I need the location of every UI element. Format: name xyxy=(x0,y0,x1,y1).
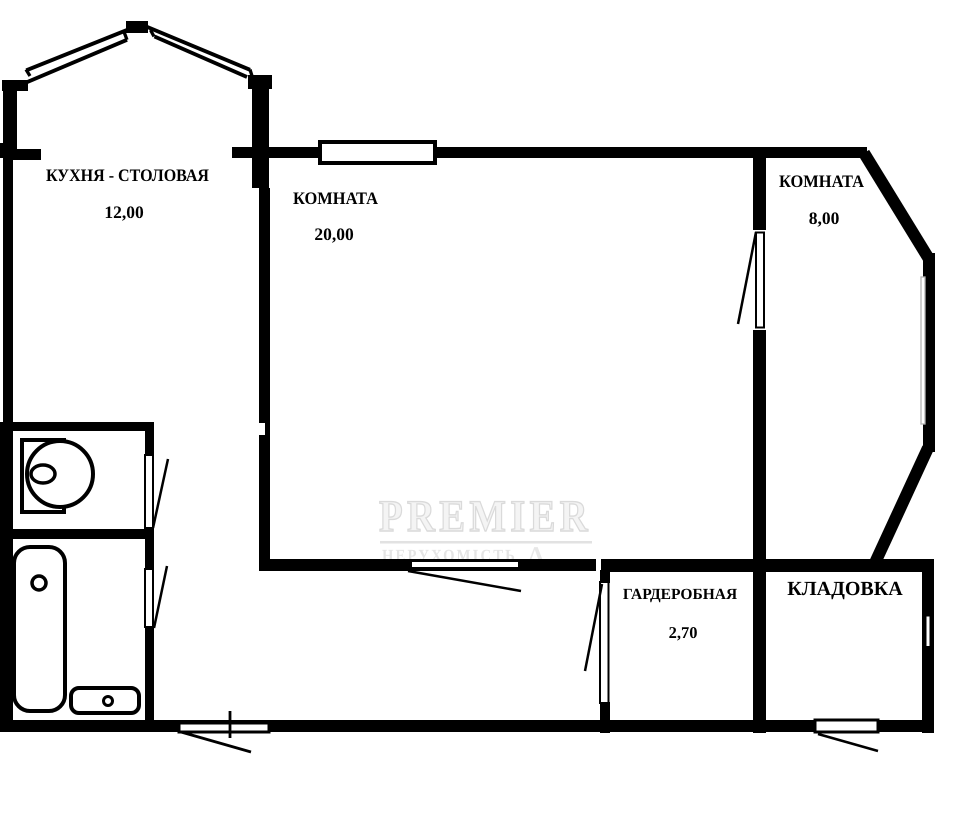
svg-text:КОМНАТА: КОМНАТА xyxy=(293,188,378,208)
svg-text:8,00: 8,00 xyxy=(809,208,840,228)
svg-text:20,00: 20,00 xyxy=(314,224,354,244)
svg-text:КОМНАТА: КОМНАТА xyxy=(779,171,864,191)
svg-text:КЛАДОВКА: КЛАДОВКА xyxy=(787,578,903,600)
svg-text:2,70: 2,70 xyxy=(669,623,698,642)
svg-text:КУХНЯ - СТОЛОВАЯ: КУХНЯ - СТОЛОВАЯ xyxy=(46,165,209,185)
svg-text:PREMIER: PREMIER xyxy=(379,491,592,541)
svg-text:12,00: 12,00 xyxy=(104,202,144,222)
svg-text:ГАРДЕРОБНАЯ: ГАРДЕРОБНАЯ xyxy=(623,586,737,603)
